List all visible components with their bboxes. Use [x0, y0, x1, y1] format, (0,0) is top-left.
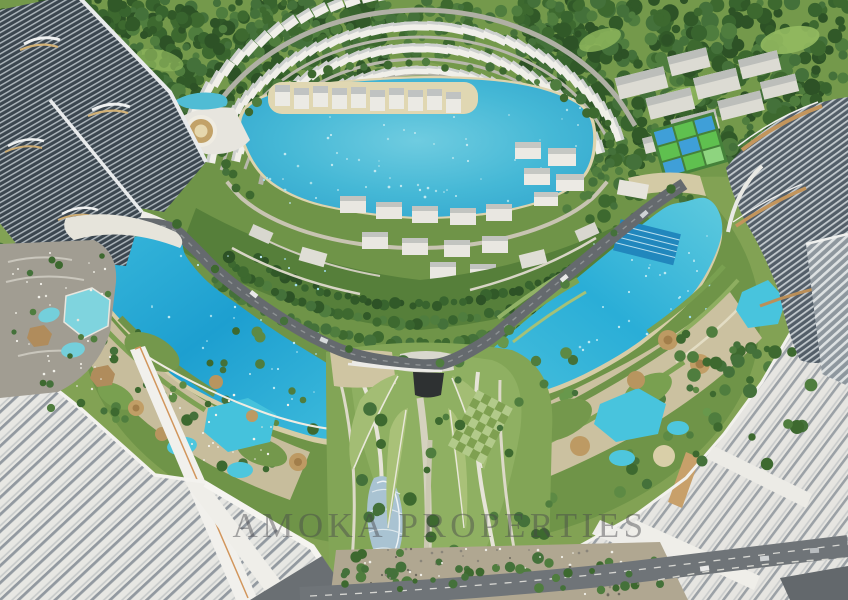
- svg-text:AMOKA PROPERTIES: AMOKA PROPERTIES: [232, 506, 647, 545]
